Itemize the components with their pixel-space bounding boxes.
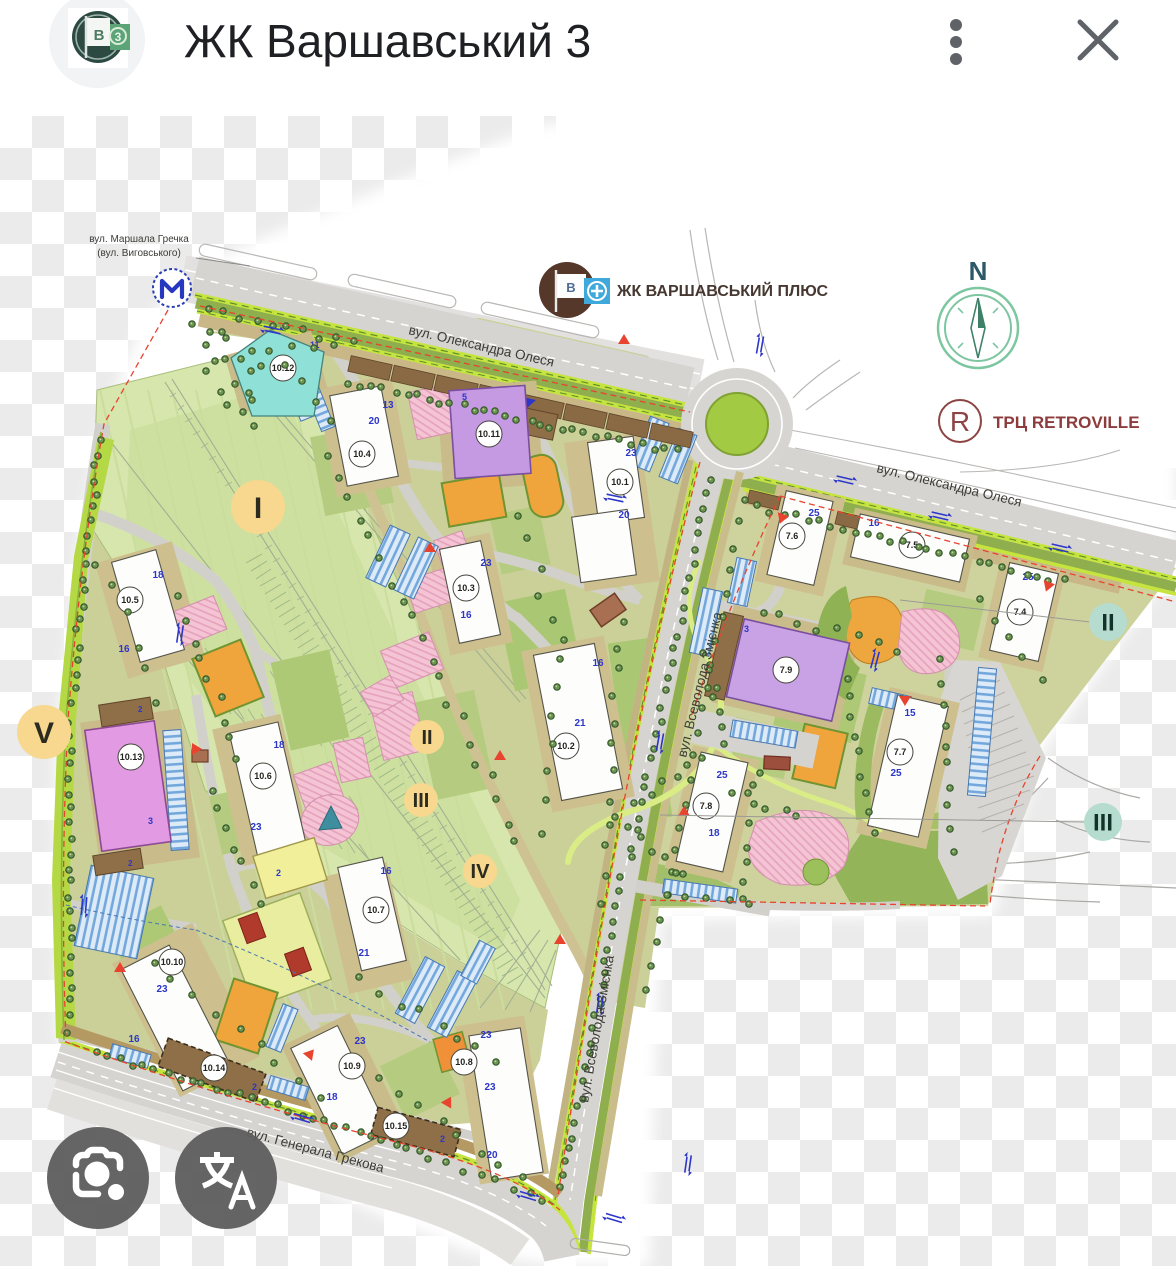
svg-text:7.8: 7.8	[700, 801, 713, 811]
svg-text:3: 3	[744, 624, 749, 634]
svg-text:18: 18	[152, 570, 164, 581]
svg-text:V: V	[34, 717, 54, 750]
svg-text:18: 18	[708, 828, 720, 839]
svg-text:16: 16	[380, 866, 392, 877]
svg-text:16: 16	[128, 1034, 140, 1045]
svg-text:2: 2	[276, 868, 281, 878]
svg-text:7.4: 7.4	[1014, 607, 1027, 617]
svg-text:10.10: 10.10	[161, 957, 184, 967]
svg-text:18: 18	[326, 1092, 338, 1103]
svg-text:10.1: 10.1	[611, 477, 629, 487]
svg-text:23: 23	[156, 984, 168, 995]
svg-text:IV: IV	[471, 861, 491, 883]
svg-text:10.3: 10.3	[457, 583, 475, 593]
svg-text:3: 3	[148, 816, 153, 826]
svg-text:10.2: 10.2	[557, 741, 575, 751]
svg-text:2: 2	[128, 859, 133, 868]
svg-text:ТРЦ RETROVILLE: ТРЦ RETROVILLE	[993, 413, 1140, 432]
svg-text:23: 23	[250, 822, 262, 833]
svg-text:III: III	[413, 790, 430, 812]
svg-text:7.6: 7.6	[786, 531, 799, 541]
svg-text:16: 16	[118, 644, 130, 655]
svg-text:15: 15	[904, 708, 916, 719]
svg-text:20: 20	[618, 510, 630, 521]
svg-text:II: II	[1101, 610, 1114, 637]
svg-text:вул. Маршала Гречка: вул. Маршала Гречка	[89, 234, 189, 245]
svg-text:2: 2	[252, 1082, 257, 1092]
svg-text:21: 21	[574, 718, 586, 729]
svg-text:2: 2	[138, 705, 143, 714]
svg-text:(вул. Виговського): (вул. Виговського)	[97, 248, 181, 259]
svg-text:7.7: 7.7	[894, 747, 907, 757]
svg-text:20: 20	[368, 416, 380, 427]
svg-text:10.14: 10.14	[203, 1063, 226, 1073]
svg-text:20: 20	[486, 1150, 498, 1161]
svg-text:18: 18	[273, 740, 285, 751]
svg-text:ЖК ВАРШАВСЬКИЙ ПЛЮС: ЖК ВАРШАВСЬКИЙ ПЛЮС	[616, 281, 829, 300]
svg-text:10.11: 10.11	[478, 429, 500, 439]
svg-text:10.7: 10.7	[367, 905, 385, 915]
svg-text:III: III	[1093, 810, 1113, 837]
svg-text:В: В	[566, 280, 575, 295]
svg-text:10.15: 10.15	[385, 1121, 408, 1131]
svg-text:23: 23	[480, 1030, 492, 1041]
svg-text:10.4: 10.4	[353, 449, 371, 459]
svg-text:10.13: 10.13	[120, 752, 143, 762]
svg-text:R: R	[950, 406, 970, 437]
svg-text:23: 23	[480, 558, 492, 569]
svg-text:II: II	[421, 727, 432, 749]
svg-text:В: В	[94, 27, 105, 44]
svg-text:10.6: 10.6	[254, 771, 272, 781]
svg-text:23: 23	[625, 448, 637, 459]
svg-text:3: 3	[115, 30, 122, 44]
svg-text:N: N	[969, 256, 988, 286]
svg-text:25: 25	[890, 768, 902, 779]
svg-text:7.9: 7.9	[780, 665, 793, 675]
svg-text:21: 21	[358, 948, 370, 959]
svg-text:2: 2	[440, 1134, 445, 1144]
svg-text:10.8: 10.8	[455, 1057, 473, 1067]
svg-text:23: 23	[484, 1082, 496, 1093]
svg-text:10.9: 10.9	[343, 1061, 361, 1071]
svg-text:16: 16	[460, 610, 472, 621]
svg-text:25: 25	[716, 770, 728, 781]
svg-text:10.5: 10.5	[121, 595, 139, 605]
svg-text:13: 13	[382, 400, 394, 411]
svg-text:I: I	[254, 492, 262, 525]
svg-text:23: 23	[354, 1036, 366, 1047]
svg-text:16: 16	[592, 658, 604, 669]
